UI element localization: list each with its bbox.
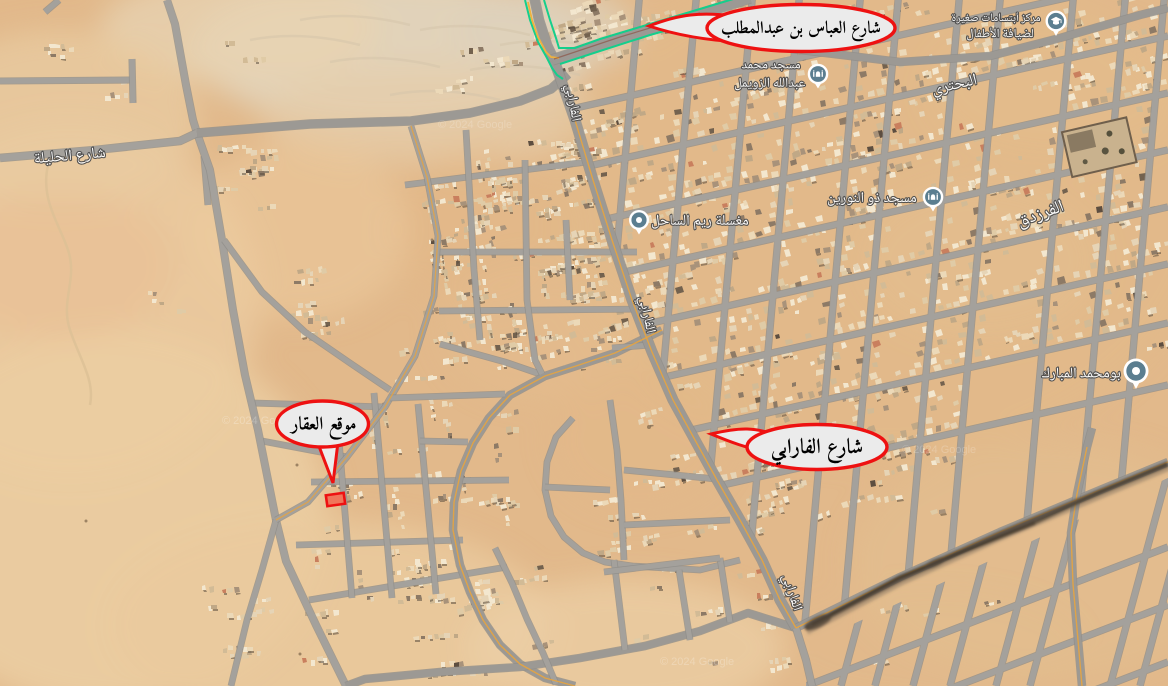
svg-text:© 2024 Google: © 2024 Google xyxy=(902,444,976,456)
svg-text:© 2024 Google: © 2024 Google xyxy=(438,119,512,131)
svg-text:© 2024 Google: © 2024 Google xyxy=(660,656,734,668)
